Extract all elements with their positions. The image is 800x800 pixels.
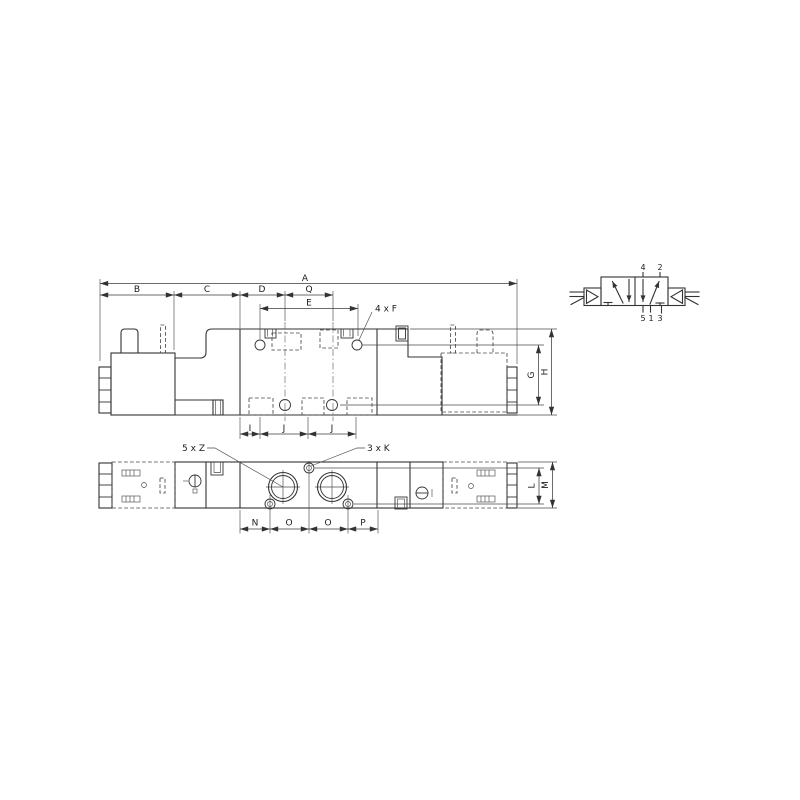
dim-label-p: P: [360, 519, 366, 529]
dim-label-b: B: [134, 285, 140, 295]
dim-label-c: C: [204, 285, 210, 295]
left-solenoid: [111, 353, 175, 415]
dim-label-l: L: [528, 483, 538, 488]
dim-label-m: M: [541, 481, 551, 489]
port-label-5: 5: [640, 314, 645, 323]
mounting-hole: [255, 340, 265, 350]
body-outline: [175, 329, 442, 415]
dim-label-h: H: [541, 369, 551, 376]
dim-label-o1: O: [285, 519, 292, 529]
dim-label-i: I: [249, 424, 252, 434]
left-solenoid-hidden: [112, 462, 175, 508]
port-label-2: 2: [657, 263, 662, 272]
bottom-view-details: [122, 462, 495, 509]
port-hole: [327, 400, 338, 411]
right-tab-hidden: [477, 330, 493, 353]
left-tab: [121, 329, 138, 353]
side-view-holes: [255, 322, 362, 421]
side-view-hidden-lines: [249, 325, 507, 415]
port-label-1: 1: [648, 314, 653, 323]
dimensions: A B C D Q E 4 x F G H I J J 5 x Z 3 x K: [100, 274, 557, 534]
dim-label-n: N: [252, 519, 259, 529]
left-pin: [161, 325, 166, 353]
port-label-3: 3: [657, 314, 662, 323]
pilot-triangle: [587, 290, 599, 303]
dim-label-q: Q: [305, 285, 312, 295]
port-label-4: 4: [640, 263, 645, 272]
dim-label-a: A: [302, 274, 309, 284]
dim-label-g: G: [527, 371, 537, 378]
callout-3xk: 3 x K: [367, 444, 391, 454]
dim-label-j1: J: [282, 424, 286, 434]
bottom-view-outline: [99, 462, 517, 508]
side-view-outline: [99, 325, 517, 415]
dim-label-d: D: [259, 285, 266, 295]
left-cap: [99, 463, 112, 508]
dim-label-o2: O: [324, 519, 331, 529]
right-cap: [507, 463, 517, 508]
callout-4xf: 4 x F: [375, 305, 397, 315]
pilot-triangle: [671, 290, 683, 303]
valve-technical-drawing: A B C D Q E 4 x F G H I J J 5 x Z 3 x K: [0, 0, 800, 800]
valve-flow-symbol: 4 2 5 1 3: [570, 263, 699, 323]
right-solenoid-hidden: [443, 462, 507, 508]
bottom-view: [99, 462, 517, 509]
bottom-tab: [213, 400, 223, 415]
dim-label-e: E: [306, 299, 312, 309]
callout-5xz: 5 x Z: [182, 444, 205, 454]
mounting-hole: [352, 340, 362, 350]
drawing-canvas: A B C D Q E 4 x F G H I J J 5 x Z 3 x K: [0, 0, 800, 800]
right-solenoid-hidden: [441, 353, 507, 412]
side-view: [99, 322, 517, 421]
dim-label-j2: J: [330, 424, 334, 434]
